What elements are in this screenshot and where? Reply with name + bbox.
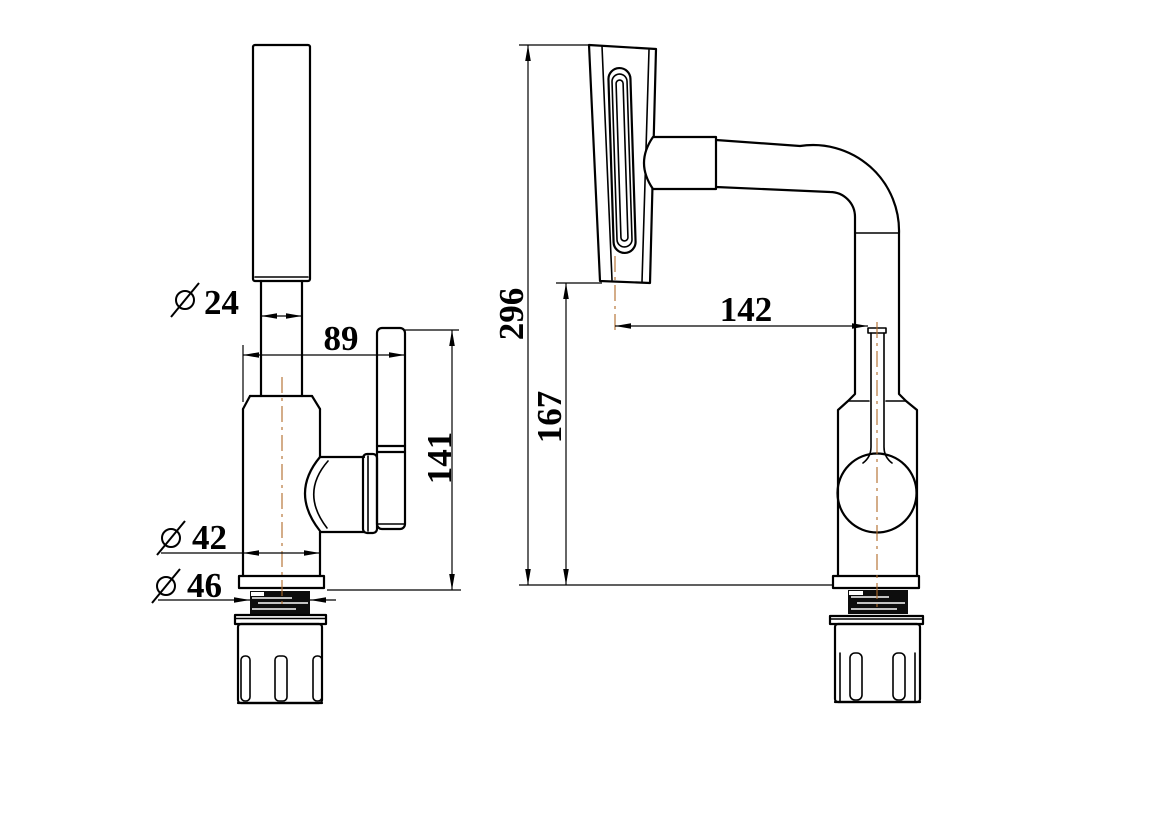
lock-plate: [235, 615, 326, 624]
lock-plate-front: [830, 616, 923, 624]
dim-spout-reach: 142: [615, 290, 868, 329]
spout-panel-side: [377, 328, 405, 529]
dim-label: 296: [492, 288, 531, 341]
dim-label: 141: [420, 432, 459, 485]
dim-label: 42: [192, 518, 227, 557]
waterfall-slot: [608, 68, 636, 254]
mounting-nut-front: [835, 624, 920, 702]
dimensions: 24 89 141 42: [152, 45, 868, 605]
dim-label: 89: [324, 319, 359, 358]
left-view: [235, 45, 405, 703]
dim-spout-offset: 89: [243, 319, 405, 402]
dim-deck-to-panel: 167: [530, 283, 602, 585]
mounting-nut: [238, 624, 322, 703]
swivel-connector: [644, 137, 716, 189]
spout-connector: [305, 454, 377, 533]
dim-body-diameter: 42: [157, 518, 320, 557]
ball-joint: [838, 454, 917, 533]
spout-arm-elbow: [716, 140, 917, 576]
dim-label: 24: [204, 283, 239, 322]
dim-label: 167: [530, 391, 569, 444]
faucet-body: [243, 409, 320, 576]
thread-section-front: [848, 590, 908, 614]
right-view: [589, 45, 923, 702]
handle-cylinder: [253, 45, 310, 281]
dim-panel-height: 141: [327, 330, 461, 590]
dim-overall-height: 296: [492, 45, 590, 585]
base-flange-front: [833, 576, 919, 588]
faucet-technical-drawing: 24 89 141 42: [0, 0, 1169, 826]
dim-neck-diameter: 24: [171, 283, 302, 322]
dim-label: 142: [720, 290, 773, 329]
dim-label: 46: [187, 566, 222, 605]
thread-section: [250, 591, 310, 614]
drawing-sheet: 24 89 141 42: [0, 0, 1169, 826]
spout-panel-front: [589, 45, 656, 334]
